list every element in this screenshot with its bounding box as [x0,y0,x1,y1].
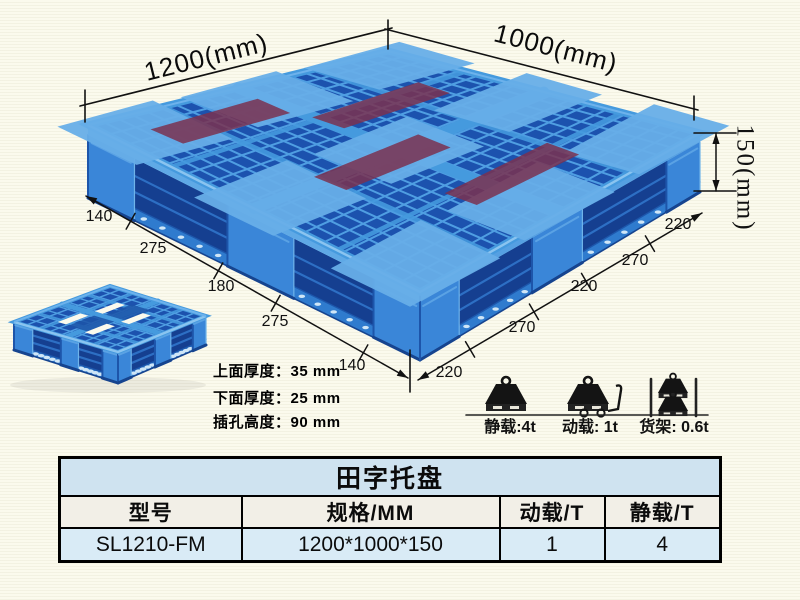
dynamic-load-label: 动载: 1t [562,420,618,436]
rack-load-label: 货架: 0.6t [639,420,708,436]
dim-right-seg-2: 220 [571,279,598,295]
cell-static-load: 4 [605,528,721,562]
static-load-icon [485,377,527,411]
dim-left-seg-2: 180 [208,279,235,295]
col-header-spec: 规格/MM [242,496,500,528]
dim-height-label: 150(mm) [733,124,758,231]
table-title: 田字托盘 [60,458,721,497]
cell-model: SL1210-FM [60,528,242,562]
col-header-static-load: 静载/T [605,496,721,528]
table-row: SL1210-FM 1200*1000*150 1 4 [60,528,721,562]
col-header-dynamic-load: 动载/T [500,496,605,528]
note-fork-height: 插孔高度：90 mm [213,411,341,432]
rack-load-icon [651,374,696,416]
product-sheet: 1200(mm) 1000(mm) 150(mm) 140 275 180 27… [0,0,800,600]
note-bottom-thickness: 下面厚度：25 mm [213,387,341,408]
cell-dynamic-load: 1 [500,528,605,562]
dim-right-seg-0: 220 [436,365,463,381]
dim-left-seg-3: 275 [262,314,289,330]
dim-right-seg-3: 270 [622,253,649,269]
col-header-model: 型号 [60,496,242,528]
dim-left-seg-0: 140 [86,209,113,225]
dim-right-seg-1: 270 [509,320,536,336]
small-pallet [10,286,206,393]
dynamic-load-icon [567,377,621,417]
static-load-label: 静载:4t [484,420,536,436]
dim-left-seg-1: 275 [140,241,167,257]
spec-table: 田字托盘 型号 规格/MM 动载/T 静载/T SL1210-FM 1200*1… [58,456,722,563]
dim-left-seg-4: 140 [339,358,366,374]
cell-spec: 1200*1000*150 [242,528,500,562]
dim-right-seg-4: 220 [665,217,692,233]
note-top-thickness: 上面厚度：35 mm [213,360,341,381]
